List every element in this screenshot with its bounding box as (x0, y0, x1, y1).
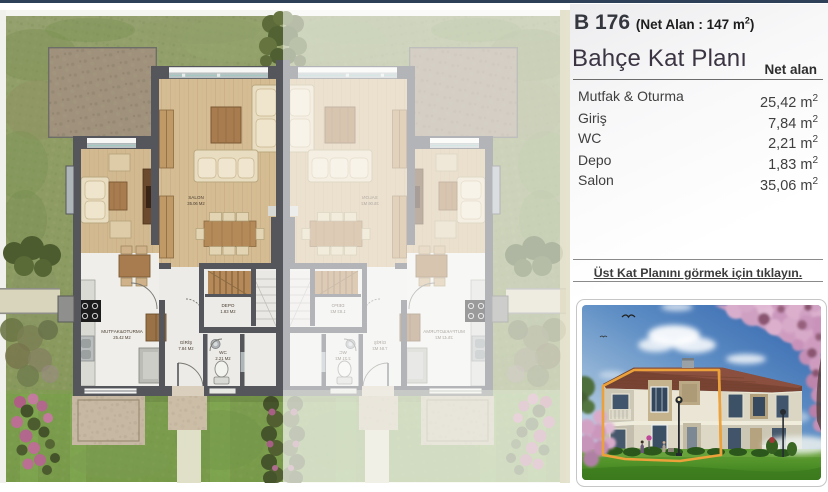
svg-text:1.83 M2: 1.83 M2 (220, 309, 236, 314)
svg-text:25.42 M2: 25.42 M2 (113, 335, 131, 340)
svg-text:SALON: SALON (188, 195, 204, 200)
svg-text:WC: WC (219, 350, 227, 355)
svg-text:35.06 M2: 35.06 M2 (187, 201, 205, 206)
svg-text:7.84 M2: 7.84 M2 (178, 346, 194, 351)
svg-text:2.21 M2: 2.21 M2 (215, 356, 231, 361)
svg-text:MUTFAK&OTURMA: MUTFAK&OTURMA (101, 329, 144, 334)
svg-text:DEPO: DEPO (221, 303, 234, 308)
svg-text:GİRİŞ: GİRİŞ (180, 339, 193, 345)
